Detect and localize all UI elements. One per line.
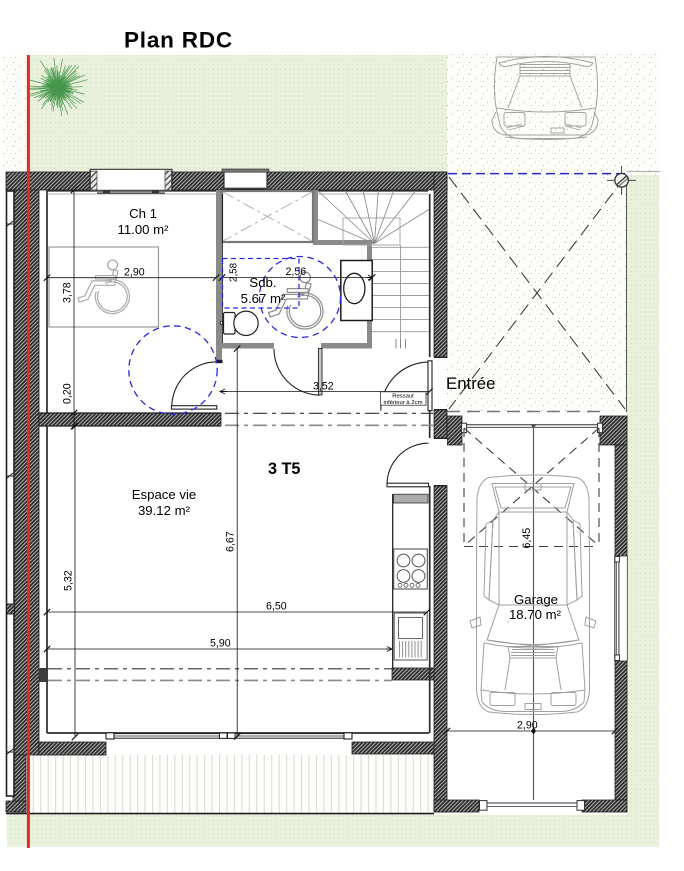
svg-text:5.67 m²: 5.67 m² xyxy=(241,291,286,306)
svg-text:3,52: 3,52 xyxy=(313,381,334,393)
svg-text:Espace vie: Espace vie xyxy=(132,487,197,502)
svg-text:2,90: 2,90 xyxy=(124,267,145,279)
svg-text:2,58: 2,58 xyxy=(229,262,240,282)
svg-text:Ressaut: Ressaut xyxy=(392,393,414,399)
svg-text:Sdb.: Sdb. xyxy=(249,275,276,290)
svg-text:11.00 m²: 11.00 m² xyxy=(117,222,169,237)
svg-text:5,90: 5,90 xyxy=(210,638,231,650)
svg-text:0,20: 0,20 xyxy=(62,383,74,404)
svg-text:6,50: 6,50 xyxy=(266,601,287,613)
svg-text:39.12 m²: 39.12 m² xyxy=(138,503,191,518)
svg-text:Garage: Garage xyxy=(514,592,558,607)
svg-text:6,67: 6,67 xyxy=(225,531,237,552)
svg-text:2,56: 2,56 xyxy=(286,266,307,278)
svg-text:Plan RDC: Plan RDC xyxy=(124,28,233,53)
svg-text:18.70 m²: 18.70 m² xyxy=(509,607,562,622)
svg-text:3 T5: 3 T5 xyxy=(268,460,300,478)
svg-text:Ch 1: Ch 1 xyxy=(129,206,157,221)
svg-text:6,45: 6,45 xyxy=(521,528,533,549)
svg-text:Entrée: Entrée xyxy=(446,374,495,393)
svg-text:5,32: 5,32 xyxy=(63,570,75,591)
svg-text:inférieur à 2cm: inférieur à 2cm xyxy=(384,400,423,406)
svg-text:3,78: 3,78 xyxy=(62,282,74,303)
